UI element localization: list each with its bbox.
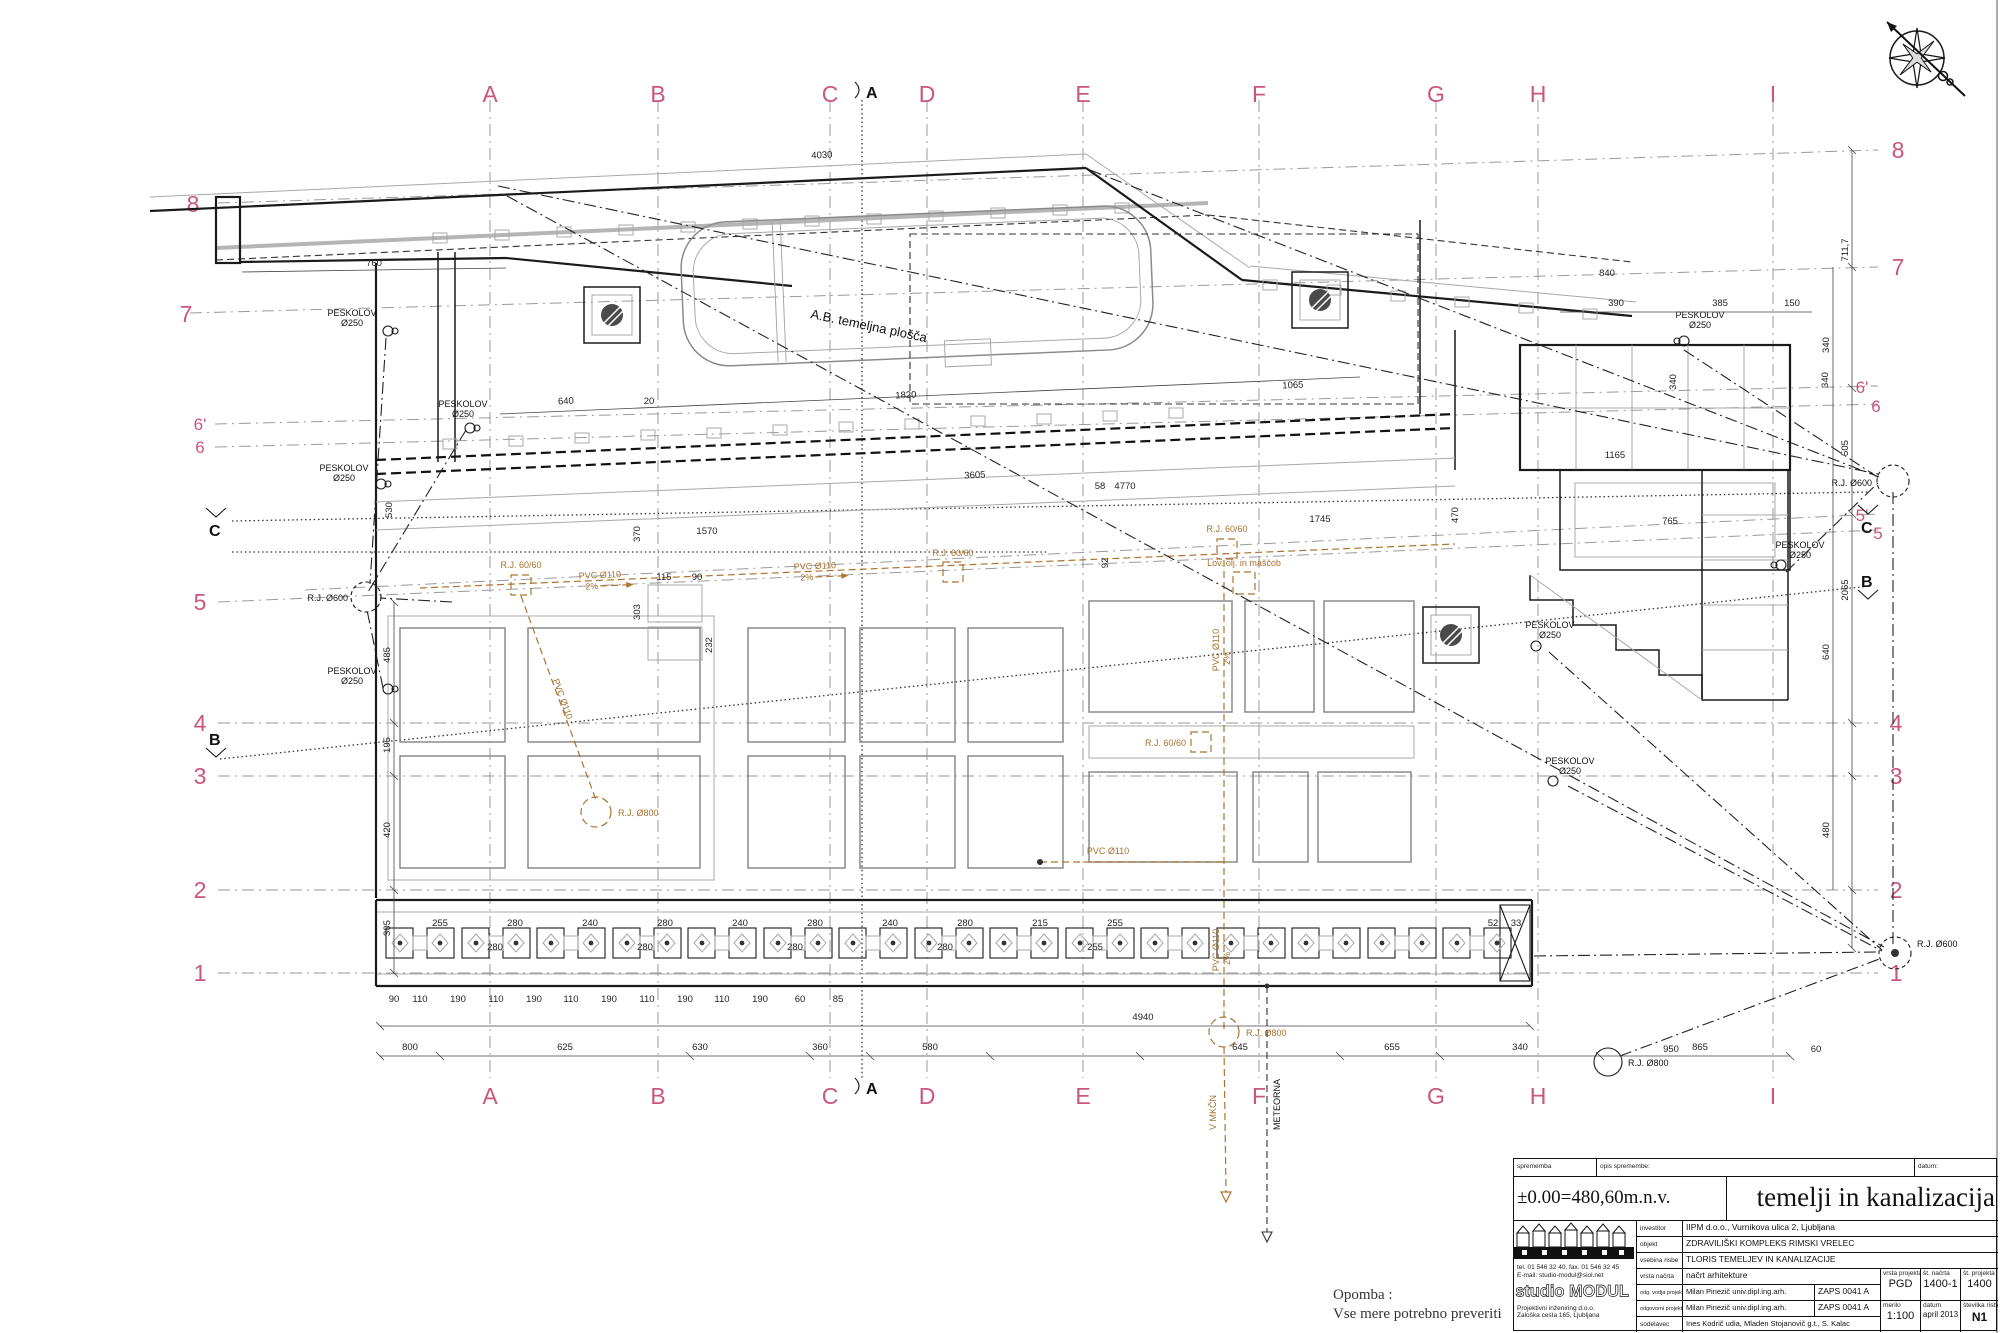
designer-id-value: ZAPS 0041 A (1818, 1302, 1869, 1312)
pvc-label: PVC Ø110 (551, 677, 575, 720)
peskolov-dia: Ø250 (333, 473, 355, 483)
plan-canvas: A B C D E F G H I A B C D E F G H I 8 7 … (0, 0, 2000, 1333)
stepped-footing (1530, 575, 1788, 700)
peskolov-dia: Ø250 (1789, 550, 1811, 560)
dim-label: 190 (752, 994, 768, 1005)
mkcn-label: V MKČN (1208, 1095, 1218, 1130)
rev-label: sprememba (1517, 1163, 1551, 1170)
scale-value: 1:100 (1881, 1310, 1920, 1322)
grid-label: I (1770, 81, 1776, 107)
section-mark-c-right: C (1861, 520, 1873, 537)
pvc-label: PVC Ø110 (1211, 629, 1221, 671)
dim-label: 240 (882, 918, 898, 929)
dim-label: 190 (677, 994, 693, 1005)
firm-tel: tel. 01 546 32 40, fax. 01 546 32 45 (1514, 1263, 1636, 1272)
dim-label: 195 (382, 737, 393, 753)
plan-type-label: vrsta načrta (1640, 1273, 1674, 1280)
lead-label: odg. vodja projekta (1640, 1290, 1682, 1296)
firm-cell: tel. 01 546 32 40, fax. 01 546 32 45 E-m… (1514, 1220, 1636, 1332)
rj800-label: R.J. Ø800 (1246, 1028, 1287, 1038)
peskolov-traps: PESKOLOVØ250 PESKOLOVØ250 PESKOLOVØ250 P… (319, 308, 1824, 786)
dim-label: 190 (526, 994, 542, 1005)
meteorna-label: METEORNA (1272, 1079, 1282, 1130)
grid-row-labels-right: 8 7 6' 6 5' 5 4 3 2 1 (1856, 137, 1905, 986)
drawing-sheet: A B C D E F G H I A B C D E F G H I 8 7 … (0, 0, 2000, 1333)
plan-type-value: načrt arhitekture (1686, 1270, 1747, 1280)
pvc-label: PVC Ø110 (1087, 846, 1129, 856)
dim-label: 3605 (964, 470, 986, 482)
dim-label: 711,7 (1840, 238, 1851, 261)
peskolov-dia: Ø250 (452, 409, 474, 419)
grid-col-labels-top: A B C D E F G H I (482, 81, 1776, 107)
dim-label: 2065 (1840, 579, 1851, 600)
date-value: april 2013 (1921, 1310, 1960, 1319)
sewer-network: R.J. 60/60 R.J. 60/60 R.J. 60/60 R.J. 60… (420, 524, 1455, 1202)
studio-modul-logo (1514, 1221, 1634, 1261)
plan-type-label-cell: vrsta načrta (1636, 1268, 1682, 1284)
designer-cell: Milan Pinezič univ.dipl.ing.arh. (1682, 1300, 1814, 1316)
grid-label: 3 (1890, 763, 1903, 789)
grid-label: H (1530, 81, 1547, 107)
column-pad-hatched (1292, 272, 1348, 328)
grid-label: 1 (194, 960, 207, 986)
lead-id-value: ZAPS 0041 A (1818, 1286, 1869, 1296)
collab-value: Ines Kodrič udia, Mladen Stojanovič g.t.… (1686, 1319, 1850, 1328)
proj-type-label: vrsta projekta (1881, 1269, 1920, 1278)
grid-label: 5 (1873, 524, 1882, 543)
dim-label: 4940 (1132, 1012, 1153, 1023)
firm-name: studio MODUL (1515, 1282, 1629, 1300)
grid-label: 5 (194, 589, 207, 615)
firm-desc: Projektivni inženiring d.o.o. (1514, 1305, 1636, 1312)
grid-lines-vertical (490, 100, 1773, 1078)
lead-value: Milan Pinezič univ.dipl.ing.arh. (1686, 1287, 1786, 1296)
scale-label: merilo (1881, 1301, 1920, 1310)
grid-label: B (650, 81, 665, 107)
rj6060-label: R.J. 60/60 (932, 548, 973, 558)
grid-label: 2 (194, 877, 207, 903)
dim-label: 480 (1821, 822, 1832, 838)
scale-cell: merilo 1:100 (1880, 1300, 1920, 1332)
pvc-label: PVC Ø110 (794, 560, 837, 572)
rj600-label: R.J. Ø600 (1917, 939, 1958, 949)
grid-label: 7 (180, 301, 193, 327)
plan-no-cell: št. načrta 1400-1 (1920, 1268, 1960, 1300)
manhole-rj800 (581, 797, 611, 827)
peskolov-label: PESKOLOV (1675, 310, 1724, 320)
peskolov-dia: Ø250 (1539, 630, 1561, 640)
dim-label: 580 (922, 1042, 938, 1053)
section-line-b: B B (206, 574, 1878, 759)
peskolov-label: PESKOLOV (438, 399, 487, 409)
section-mark-a-top: A (866, 85, 878, 102)
collector-lines (367, 170, 1893, 956)
designer-value: Milan Pinezič univ.dipl.ing.arh. (1686, 1303, 1786, 1312)
dim-label: 280 (487, 942, 503, 953)
dim-label: 505 (1840, 440, 1851, 456)
grid-label: 7 (1892, 254, 1905, 280)
dim-label: 280 (807, 918, 823, 929)
designer-label-cell: odgovorni projektant (1636, 1300, 1682, 1316)
slope-label: 2% (585, 581, 598, 592)
dim-label: 280 (937, 942, 953, 953)
dim-label: 4770 (1114, 481, 1135, 492)
section-mark-a-bottom: A (866, 1081, 878, 1098)
dim-label: 390 (1608, 298, 1624, 309)
peskolov-dia: Ø250 (341, 318, 363, 328)
rev-label-cell: sprememba (1514, 1159, 1596, 1176)
grid-label: E (1075, 1083, 1090, 1109)
grid-label: C (822, 81, 839, 107)
dim-label: 1745 (1309, 514, 1330, 525)
rj6060-shaft (1191, 732, 1211, 752)
dim-label: 110 (639, 994, 654, 1005)
dim-label: 1570 (696, 526, 717, 537)
rj6060-shaft (511, 575, 531, 595)
object-label: objekt (1640, 1241, 1657, 1248)
dim-label: 530 (384, 502, 395, 518)
dim-label: 150 (1784, 298, 1800, 309)
dim-label: 1065 (1282, 380, 1304, 392)
grid-lines-horizontal (190, 150, 1878, 973)
object-label-cell: objekt (1636, 1236, 1682, 1252)
column-pad-hatched (584, 287, 640, 343)
firm-email: E-mail: studio-modul@siol.net (1514, 1272, 1636, 1279)
elevation-value: ±0.00=480,60m.n.v. (1517, 1187, 1670, 1208)
peskolov-label: PESKOLOV (1525, 620, 1574, 630)
svg-text:PESKOLOVØ250: PESKOLOVØ250 (1525, 620, 1574, 640)
rj800-label: R.J. Ø800 (1628, 1058, 1669, 1068)
investor-value: IIPM d.o.o., Vurnikova ulica 2, Ljubljan… (1686, 1222, 1835, 1232)
grid-label: D (919, 81, 936, 107)
grid-label: 4 (1890, 710, 1903, 736)
dim-label: 760 (366, 258, 382, 269)
rj600-manholes: R.J. Ø600 R.J. Ø600 R.J. Ø600 (307, 465, 1957, 969)
dim-label: 52 (1488, 918, 1499, 929)
note-line2: Vse mere potrebno preveriti (1333, 1305, 1502, 1324)
object-cell: ZDRAVILIŠKI KOMPLEKS RIMSKI VRELEC (1682, 1236, 1998, 1252)
proj-no-label: št. projekta (1961, 1269, 1998, 1278)
dim-label: 340 (1512, 1042, 1528, 1053)
dim-label: 232 (704, 637, 715, 653)
rev-date-cell: datum: (1914, 1159, 1998, 1176)
investor-cell: IIPM d.o.o., Vurnikova ulica 2, Ljubljan… (1682, 1220, 1998, 1236)
dim-label: 470 (1450, 507, 1461, 523)
rev-desc-cell: opis spremembe: (1596, 1159, 1914, 1176)
content-label: vsebina risbe (1640, 1257, 1678, 1264)
proj-type-cell: vrsta projekta PGD (1880, 1268, 1920, 1300)
investor-label-cell: investitor (1636, 1220, 1682, 1236)
dim-label: 190 (450, 994, 466, 1005)
svg-text:PESKOLOVØ250: PESKOLOVØ250 (1675, 310, 1724, 330)
peskolov-dia: Ø250 (1689, 320, 1711, 330)
grid-label: 6 (1871, 397, 1880, 416)
rj600-label: R.J. Ø600 (307, 593, 348, 603)
dim-label: 4030 (811, 150, 833, 162)
dim-label: 92 (1100, 558, 1111, 569)
dim-label: 85 (833, 994, 844, 1005)
grid-label: 1 (1890, 960, 1903, 986)
grease-trap (1233, 572, 1255, 594)
dim-label: 90 (692, 572, 703, 583)
grid-label: 6' (1856, 378, 1869, 397)
proj-type-value: PGD (1881, 1278, 1920, 1290)
dim-label: 60 (795, 994, 806, 1005)
dim-label: 215 (1032, 918, 1048, 929)
svg-text:PESKOLOVØ250: PESKOLOVØ250 (327, 308, 376, 328)
dim-label: 630 (692, 1042, 708, 1053)
dim-label: 1165 (1605, 450, 1625, 461)
note-line1: Opomba : (1333, 1286, 1502, 1305)
dim-label: 90 (389, 994, 400, 1005)
dim-label: 655 (1384, 1042, 1400, 1053)
dim-label: 640 (558, 396, 574, 408)
sheet-no-cell: številka risbe N1 (1960, 1300, 1998, 1332)
lead-label-cell: odg. vodja projekta (1636, 1284, 1682, 1300)
dim-label: 33 (1511, 918, 1522, 929)
dim-label: 420 (382, 822, 393, 838)
dim-label: 280 (957, 918, 973, 929)
dim-label: 360 (812, 1042, 828, 1053)
slope-label: 2% (1222, 952, 1232, 965)
sheet-title: temelji in kanalizacija (1757, 1182, 1995, 1212)
rev-desc-label: opis spremembe: (1600, 1163, 1650, 1170)
grid-label: H (1530, 1083, 1547, 1109)
firm-address: Zaloška cesta 165, Ljubljana (1514, 1312, 1636, 1319)
dimension-labels: 4030 760 640 20 1820 1065 3605 1570 370 … (366, 150, 1851, 1055)
content-label-cell: vsebina risbe (1636, 1252, 1682, 1268)
dim-label: 280 (507, 918, 523, 929)
grid-label: I (1770, 1083, 1776, 1109)
dim-label: 110 (714, 994, 729, 1005)
pvc-label: PVC Ø110 (579, 569, 622, 581)
peskolov-label: PESKOLOV (327, 308, 376, 318)
column-pad-hatched (1423, 607, 1479, 663)
section-mark-b-left: B (209, 732, 221, 749)
plan-no-label: št. načrta (1921, 1269, 1960, 1278)
foundation-cells (388, 585, 1414, 880)
grease-trap-label: Lov. olj. in maščob (1207, 558, 1281, 568)
grid-label: 3 (194, 763, 207, 789)
svg-text:PESKOLOVØ250: PESKOLOVØ250 (438, 399, 487, 419)
rj6060-label: R.J. 60/60 (500, 560, 541, 570)
dim-label: 370 (632, 526, 643, 542)
dim-label: 110 (412, 994, 427, 1005)
slab-label: A.B. temeljna plošča (809, 306, 929, 345)
peskolov-label: PESKOLOV (1775, 540, 1824, 550)
dim-label: 303 (632, 604, 643, 620)
collab-label: sodelavec (1640, 1321, 1669, 1328)
peskolov-label: PESKOLOV (327, 666, 376, 676)
sheet-no-label: številka risbe (1961, 1301, 1998, 1310)
grid-label: 4 (194, 710, 207, 736)
compass-rose-icon (1886, 22, 1965, 96)
lead-cell: Milan Pinezič univ.dipl.ing.arh. (1682, 1284, 1814, 1300)
pool-slab (679, 204, 1155, 378)
grid-label: 8 (1892, 137, 1905, 163)
section-mark-c-left: C (209, 523, 221, 540)
dim-label: 110 (488, 994, 503, 1005)
svg-text:PESKOLOVØ250: PESKOLOVØ250 (1775, 540, 1824, 560)
dim-label: 280 (637, 942, 653, 953)
grid-label: A (482, 81, 498, 107)
svg-text:PESKOLOVØ250: PESKOLOVØ250 (327, 666, 376, 686)
dim-label: 865 (1692, 1042, 1708, 1053)
dim-label: 255 (432, 918, 448, 929)
dim-label: 20 (644, 396, 655, 407)
dim-label: 800 (402, 1042, 418, 1053)
dim-label: 640 (1821, 644, 1832, 660)
designer-label: odgovorni projektant (1640, 1306, 1682, 1312)
svg-text:PESKOLOVØ250: PESKOLOVØ250 (319, 463, 368, 483)
section-mark-b-right: B (1861, 574, 1873, 591)
investor-label: investitor (1640, 1225, 1666, 1232)
dim-label: 1820 (895, 390, 917, 402)
designer-id-cell: ZAPS 0041 A (1814, 1300, 1880, 1316)
slope-label: 2% (800, 572, 813, 583)
plan-no-value: 1400-1 (1921, 1278, 1960, 1290)
dimension-lines (242, 146, 1856, 1060)
sheet-title-cell: temelji in kanalizacija (1726, 1176, 1998, 1220)
dim-label: 115 (656, 572, 671, 583)
dim-label: 765 (1662, 516, 1678, 527)
manhole-rj800 (1594, 1048, 1622, 1076)
peskolov-dia: Ø250 (1559, 766, 1581, 776)
peskolov-dia: Ø250 (341, 676, 363, 686)
peskolov-label: PESKOLOV (319, 463, 368, 473)
pvc-label: PVC Ø110 (1211, 929, 1221, 971)
slope-label: 2% (1222, 652, 1232, 665)
plan-type-cell: načrt arhitekture (1682, 1268, 1880, 1284)
rj800-label: R.J. Ø800 (618, 808, 659, 818)
dim-label: 60 (1811, 1044, 1822, 1055)
dim-label: 240 (732, 918, 748, 929)
grid-label: A (482, 1083, 498, 1109)
grid-label: F (1252, 1083, 1266, 1109)
dim-label: 340 (1668, 374, 1679, 390)
content-value: TLORIS TEMELJEV IN KANALIZACIJE (1686, 1254, 1836, 1264)
grid-col-labels-bottom: A B C D E F G H I (482, 1083, 1776, 1109)
excavation-boundary (910, 234, 1418, 404)
peskolov-label: PESKOLOV (1545, 756, 1594, 766)
dim-label: 340 (1821, 337, 1832, 353)
proj-no-cell: št. projekta 1400 (1960, 1268, 1998, 1300)
grid-label: 6 (195, 438, 204, 457)
rj6060-label: R.J. 60/60 (1145, 738, 1186, 748)
note: Opomba : Vse mere potrebno preveriti (1333, 1286, 1502, 1324)
collab-label-cell: sodelavec (1636, 1316, 1682, 1332)
date-cell: datum april 2013 (1920, 1300, 1960, 1332)
grid-label: 6' (194, 415, 207, 434)
date-label: datum (1921, 1301, 1960, 1310)
dim-label: 625 (557, 1042, 573, 1053)
dim-label: 340 (1820, 372, 1831, 388)
grid-label: B (650, 1083, 665, 1109)
rj6060-shaft (1217, 539, 1237, 559)
dim-label: 190 (601, 994, 617, 1005)
rj6060-label: R.J. 60/60 (1206, 524, 1247, 534)
grid-label: 2 (1890, 877, 1903, 903)
grid-label: G (1427, 81, 1445, 107)
grid-label: D (919, 1083, 936, 1109)
dim-label: 385 (1712, 298, 1728, 309)
content-cell: TLORIS TEMELJEV IN KANALIZACIJE (1682, 1252, 1998, 1268)
dim-label: 645 (1232, 1042, 1248, 1053)
dim-label: 280 (787, 942, 803, 953)
right-wing (1520, 345, 1790, 700)
elevation-cell: ±0.00=480,60m.n.v. (1514, 1176, 1726, 1220)
lead-id-cell: ZAPS 0041 A (1814, 1284, 1880, 1300)
dim-label: 255 (1087, 942, 1103, 953)
dim-label: 305 (382, 920, 393, 936)
dim-label: 110 (563, 994, 578, 1005)
dim-label: 840 (1599, 268, 1615, 279)
dim-label: 240 (582, 918, 598, 929)
rev-date-label: datum: (1918, 1163, 1938, 1170)
grid-label: C (822, 1083, 839, 1109)
dim-label: 255 (1107, 918, 1123, 929)
sheet-no-value: N1 (1961, 1310, 1998, 1324)
strip-footing (376, 900, 1532, 986)
dim-label: 950 (1663, 1044, 1679, 1055)
object-value: ZDRAVILIŠKI KOMPLEKS RIMSKI VRELEC (1686, 1238, 1854, 1248)
title-block: sprememba opis spremembe: datum: ±0.00=4… (1513, 1158, 1997, 1331)
grid-label: G (1427, 1083, 1445, 1109)
firm-name-outline: studio MODUL (1514, 1279, 1634, 1303)
grid-row-labels-left: 8 7 6' 6 5 4 3 2 1 (180, 191, 207, 986)
collab-cell: Ines Kodrič udia, Mladen Stojanovič g.t.… (1682, 1316, 1880, 1332)
grid-label: F (1252, 81, 1266, 107)
dim-label: 58 (1095, 481, 1106, 492)
dim-label: 485 (382, 647, 393, 663)
grid-label: E (1075, 81, 1090, 107)
proj-no-value: 1400 (1961, 1278, 1998, 1290)
dim-label: 280 (657, 918, 673, 929)
